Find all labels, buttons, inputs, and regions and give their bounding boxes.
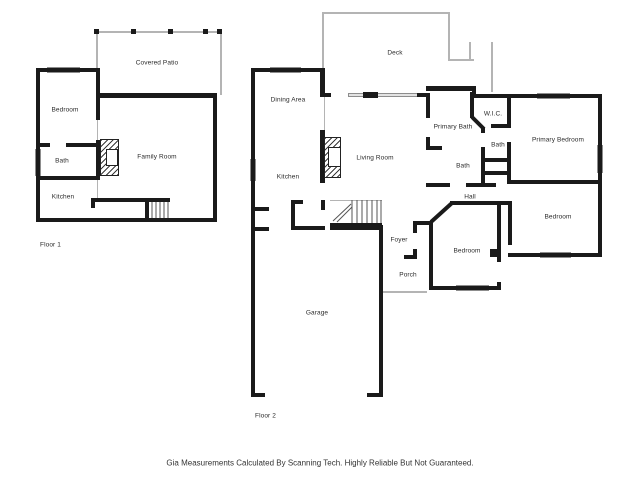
outline-segment bbox=[322, 12, 324, 69]
wall-segment bbox=[367, 393, 383, 397]
outline-segment bbox=[324, 97, 325, 130]
wall-segment bbox=[291, 226, 325, 230]
room-label-deck: Deck bbox=[387, 50, 402, 57]
wall-segment-diagonal bbox=[431, 203, 452, 222]
wall-segment bbox=[472, 94, 602, 98]
wall-segment bbox=[36, 143, 50, 147]
disclaimer-text: Gia Measurements Calculated By Scanning … bbox=[166, 459, 473, 468]
wall-segment bbox=[379, 225, 383, 397]
patio-post bbox=[217, 29, 222, 34]
wall-segment bbox=[481, 158, 510, 162]
wall-segment bbox=[426, 146, 442, 150]
room-label-family-room: Family Room bbox=[137, 154, 176, 161]
wall-segment bbox=[363, 92, 378, 98]
wall-segment bbox=[213, 95, 217, 222]
room-label-bedroom-right: Bedroom bbox=[544, 214, 571, 221]
wall-segment bbox=[490, 249, 498, 257]
room-label-hall: Hall bbox=[464, 194, 476, 201]
outline-segment bbox=[491, 42, 493, 92]
wall-segment bbox=[251, 393, 265, 397]
wall-segment bbox=[429, 221, 433, 290]
wall-segment bbox=[251, 68, 255, 397]
fireplace-inner bbox=[106, 149, 118, 166]
wall-segment bbox=[507, 94, 511, 128]
room-label-bath-lower: Bath bbox=[456, 163, 470, 170]
wall-segment bbox=[251, 207, 269, 211]
room-label-foyer: Foyer bbox=[390, 237, 407, 244]
room-label-kitchen-f1: Kitchen bbox=[52, 194, 74, 201]
wall-segment bbox=[251, 68, 324, 72]
outline-segment bbox=[469, 42, 471, 61]
patio-post bbox=[203, 29, 208, 34]
outline-segment bbox=[220, 31, 222, 95]
wall-segment bbox=[426, 183, 450, 187]
wall-segment bbox=[96, 93, 217, 98]
wall-segment bbox=[481, 128, 485, 133]
wall-segment bbox=[426, 86, 476, 91]
wall-segment bbox=[36, 176, 100, 180]
room-label-bedroom-f1: Bedroom bbox=[51, 107, 78, 114]
room-label-floor-1: Floor 1 bbox=[40, 242, 61, 249]
wall-segment bbox=[598, 183, 602, 257]
wall-segment bbox=[321, 200, 325, 210]
room-label-wic: W.I.C. bbox=[484, 111, 502, 118]
wall-segment bbox=[91, 198, 170, 202]
wall-segment bbox=[325, 93, 331, 97]
room-label-garage: Garage bbox=[306, 310, 328, 317]
wall-segment bbox=[251, 227, 269, 231]
wall-segment bbox=[507, 142, 511, 184]
wall-segment bbox=[485, 171, 508, 175]
wall-segment bbox=[96, 68, 100, 120]
room-label-dining-area: Dining Area bbox=[271, 97, 306, 104]
room-label-bath-f1: Bath bbox=[55, 158, 69, 165]
room-label-bath-upper: Bath bbox=[491, 142, 505, 149]
stair-direction-line bbox=[333, 204, 351, 221]
outline-segment bbox=[322, 12, 450, 14]
outline-segment bbox=[383, 291, 427, 293]
outline-segment bbox=[96, 31, 98, 69]
wall-segment bbox=[330, 223, 382, 230]
room-label-porch: Porch bbox=[399, 272, 416, 279]
room-label-covered-patio: Covered Patio bbox=[136, 60, 179, 67]
room-label-primary-bath: Primary Bath bbox=[434, 124, 473, 131]
wall-segment bbox=[508, 253, 602, 257]
wall-segment bbox=[508, 205, 512, 245]
wall-segment bbox=[450, 201, 502, 205]
wall-segment bbox=[36, 68, 100, 72]
wall-segment bbox=[429, 286, 501, 290]
wall-segment bbox=[36, 218, 217, 222]
patio-post bbox=[168, 29, 173, 34]
room-label-living-room: Living Room bbox=[356, 155, 393, 162]
wall-segment bbox=[145, 202, 149, 222]
room-label-primary-bedroom: Primary Bedroom bbox=[532, 137, 584, 144]
floor-plan-canvas: Gia Measurements Calculated By Scanning … bbox=[0, 0, 640, 480]
wall-segment bbox=[508, 180, 602, 184]
wall-segment bbox=[404, 255, 417, 259]
room-label-floor-2: Floor 2 bbox=[255, 413, 276, 420]
wall-segment bbox=[598, 94, 602, 183]
room-label-kitchen-f2: Kitchen bbox=[277, 174, 299, 181]
wall-segment bbox=[466, 183, 496, 187]
fireplace-inner bbox=[328, 147, 341, 167]
wall-segment bbox=[291, 200, 303, 204]
window bbox=[348, 93, 420, 97]
outline-segment bbox=[97, 120, 98, 140]
room-label-bedroom-mid: Bedroom bbox=[453, 248, 480, 255]
wall-segment bbox=[413, 221, 417, 233]
outline-segment bbox=[97, 180, 98, 198]
outline-segment bbox=[330, 200, 382, 201]
wall-segment bbox=[66, 143, 100, 147]
patio-post bbox=[131, 29, 136, 34]
wall-segment bbox=[91, 198, 95, 208]
outline-segment bbox=[448, 12, 450, 61]
wall-segment bbox=[426, 93, 430, 118]
wall-segment bbox=[470, 92, 474, 118]
patio-post bbox=[94, 29, 99, 34]
stair-direction-line bbox=[337, 207, 352, 222]
